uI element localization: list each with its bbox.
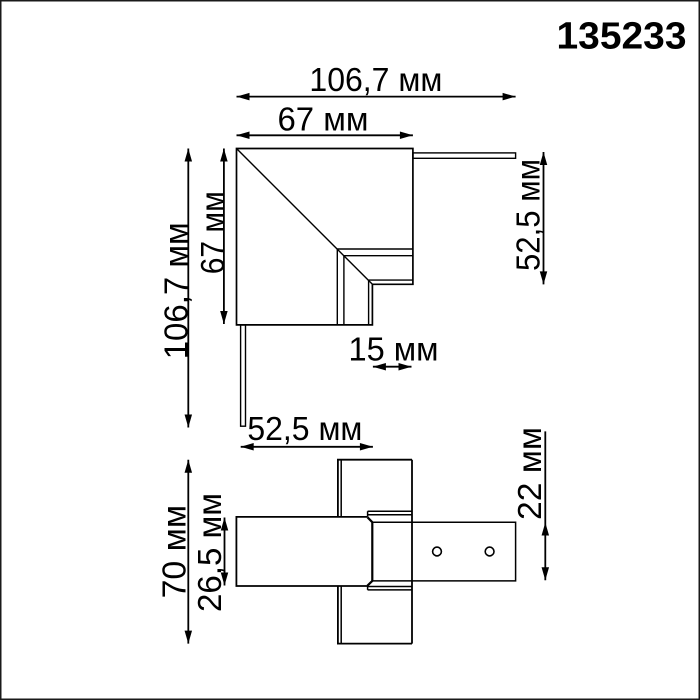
svg-text:106,7 мм: 106,7 мм [309,61,442,98]
svg-text:52,5 мм: 52,5 мм [247,410,362,447]
svg-text:26,5 мм: 26,5 мм [191,493,228,612]
svg-text:135233: 135233 [557,15,687,57]
svg-text:52,5 мм: 52,5 мм [510,159,547,271]
svg-text:67 мм: 67 мм [278,100,369,137]
svg-text:70 мм: 70 мм [156,505,193,599]
svg-text:22 мм: 22 мм [511,427,548,520]
svg-text:67 мм: 67 мм [194,191,231,274]
svg-text:106,7 мм: 106,7 мм [158,222,195,359]
svg-text:15 мм: 15 мм [349,330,439,367]
